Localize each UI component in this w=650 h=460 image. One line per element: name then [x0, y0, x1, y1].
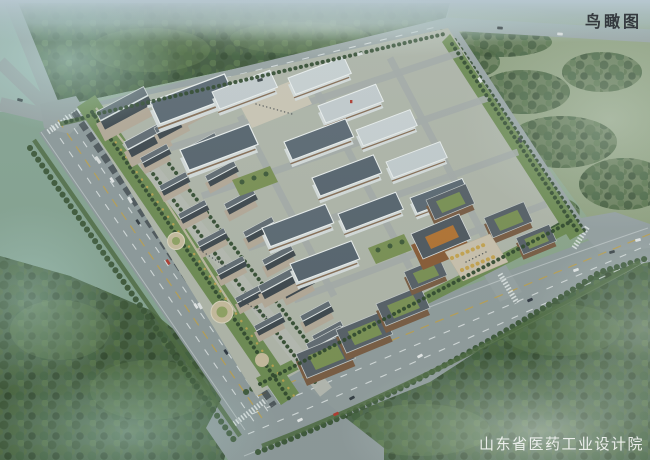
view-title-label: 鸟瞰图 — [585, 12, 642, 31]
design-institute-credit: 山东省医药工业设计院 — [479, 435, 644, 453]
aerial-rendering-canvas: 鸟瞰图 山东省医药工业设计院 — [0, 0, 650, 460]
birdseye-rendering: 鸟瞰图 山东省医药工业设计院 — [0, 0, 650, 460]
tone-overlay — [0, 0, 650, 460]
